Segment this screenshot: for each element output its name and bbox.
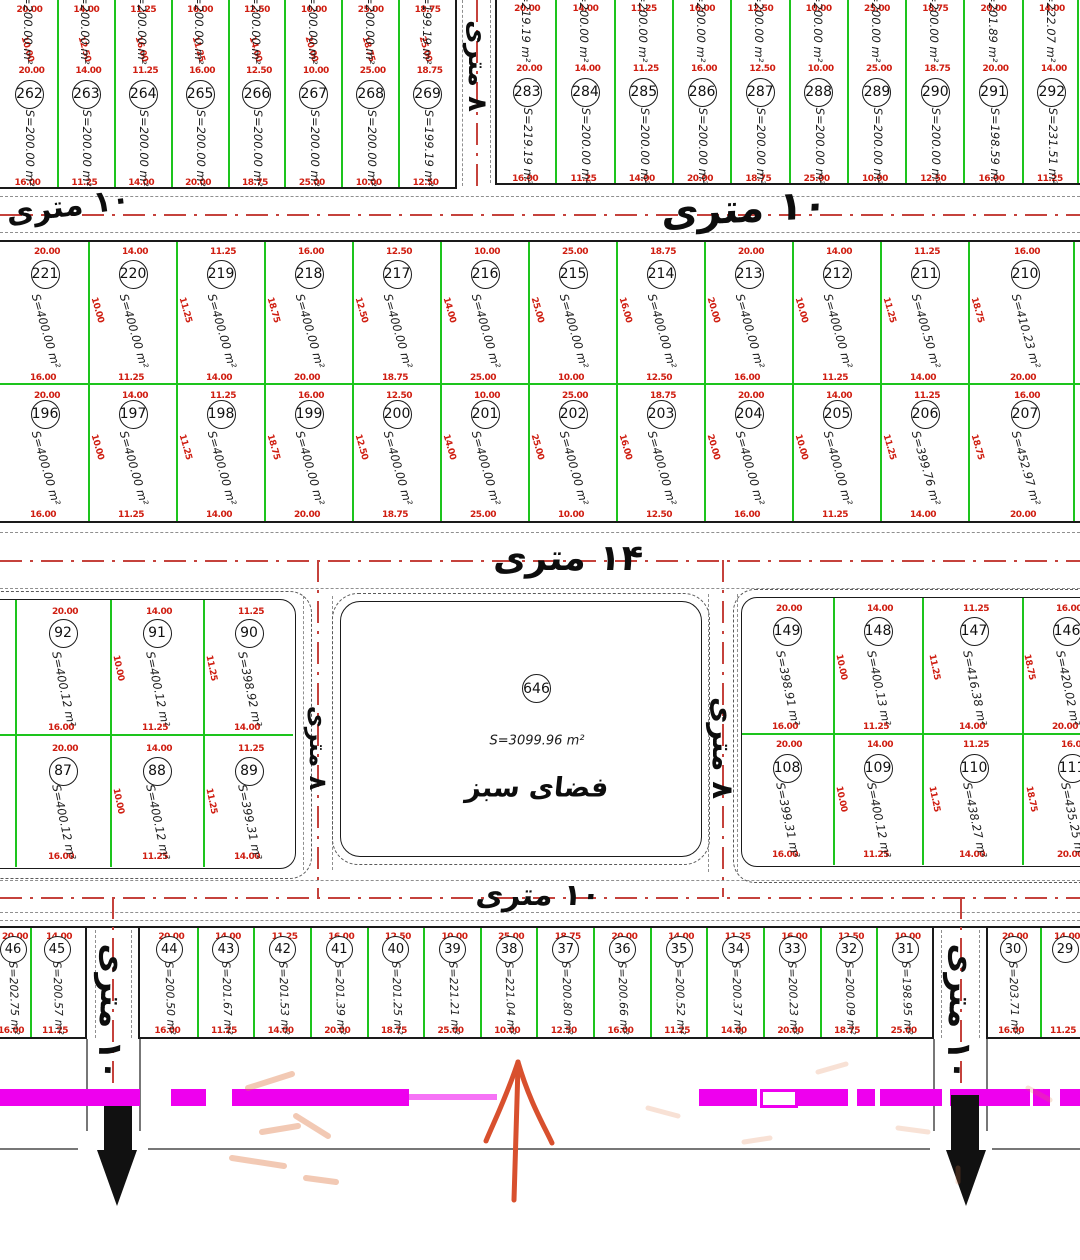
plot-area: S=200.37 m² [729, 961, 745, 1035]
plot-area: S=400.00 m² [117, 429, 152, 507]
plot-number-circle: 286 [688, 78, 717, 107]
plot-number: 214 [648, 266, 675, 282]
red-dimension: 18.75 [650, 247, 676, 257]
red-dimension: 20.00 [34, 247, 60, 257]
plot-number-circle: 43 [212, 936, 239, 963]
plot-number-circle: 37 [552, 936, 579, 963]
red-dimension: 25.00 [470, 373, 496, 383]
plot-number: 212 [824, 266, 851, 282]
red-dimension: 11.25 [118, 510, 144, 520]
plot-number: 91 [148, 625, 166, 641]
plot-area: S=200.00 m² [813, 108, 827, 185]
red-dimension: 11.25 [132, 66, 158, 76]
red-dimension-side: 16.00 [617, 433, 634, 461]
plot-number: 215 [560, 266, 587, 282]
magenta-utility-dash [1060, 1089, 1080, 1106]
red-dimension: 25.00 [470, 510, 496, 520]
plot-number: 147 [961, 623, 988, 639]
plot-number: 287 [747, 84, 774, 100]
plot-number: 29 [1057, 942, 1074, 957]
red-dimension: 18.75 [924, 64, 950, 74]
plot-area: S=231.51 m² [1046, 108, 1060, 185]
red-dimension-side: 20.00 [705, 433, 722, 461]
red-dimension: 14.00 [867, 740, 893, 750]
red-dimension: 20.00 [52, 744, 78, 754]
plot-number: 89 [240, 763, 258, 779]
plot-number: 291 [980, 84, 1007, 100]
plot-number-circle: 148 [864, 617, 893, 646]
red-dimension: 16.00 [30, 510, 56, 520]
plot-area: S=400.00 m² [821, 429, 856, 507]
plot-number-circle: 215 [559, 260, 588, 289]
plot-number-circle: 198 [207, 400, 236, 429]
red-dimension: 20.00 [1010, 373, 1036, 383]
plot-area: S=400.00 m² [557, 429, 592, 507]
plot-area: S=200.66 m² [616, 961, 632, 1035]
red-dimension: 11.25 [963, 604, 989, 614]
plot-number-circle: 109 [864, 754, 893, 783]
plot-number-circle: 288 [804, 78, 833, 107]
plot-number: 42 [274, 942, 291, 957]
plot-area: S=221.21 m² [446, 961, 462, 1035]
red-dimension: 14.00 [574, 64, 600, 74]
red-dimension: 20.00 [738, 247, 764, 257]
plot-area: S=200.00 m² [308, 110, 322, 187]
parcel-divider-line [672, 0, 674, 183]
plot-area-partial: S=199.19 m² [420, 0, 434, 64]
parcel-divider-line [398, 0, 400, 187]
plot-area: S=200.80 m² [559, 961, 575, 1035]
red-dimension-side: 14.00 [441, 296, 458, 324]
plot-number-circle: 30 [1000, 936, 1027, 963]
plot-area: S=400.00 m² [293, 292, 328, 370]
parcel-divider-line [1022, 0, 1024, 183]
red-dimension: 12.50 [646, 510, 672, 520]
parcel-divider-line [905, 0, 907, 183]
plot-number: 203 [648, 406, 675, 422]
plot-number-circle: 41 [326, 936, 353, 963]
plot-area: S=400.00 m² [29, 429, 64, 507]
parcel-divider-line [616, 242, 618, 521]
plot-area: S=400.00 m² [381, 429, 416, 507]
plot-number: 290 [922, 84, 949, 100]
plot-number-circle: 45 [44, 936, 71, 963]
plot-number-circle: 268 [356, 80, 385, 109]
plot-number: 39 [444, 942, 461, 957]
plot-number-circle: 287 [746, 78, 775, 107]
plot-area: S=400.00 m² [293, 429, 328, 507]
plot-number-circle: 108 [773, 754, 802, 783]
street-label-8m-mid-right-vertical: ۸ متری [706, 697, 740, 799]
plot-area: S=452.97 m² [1009, 429, 1044, 507]
block-boundary-line [495, 0, 497, 185]
parcel-divider-line [284, 0, 286, 187]
parcel-divider-line [536, 928, 538, 1037]
plot-number: 204 [736, 406, 763, 422]
red-dimension-side: 12.50 [353, 296, 370, 324]
plot-area: S=400.00 m² [469, 429, 504, 507]
plot-number: 286 [689, 84, 716, 100]
plot-area: S=200.00 m² [871, 108, 885, 185]
parcel-divider-line [876, 928, 878, 1037]
plot-area: S=400.00 m² [733, 292, 768, 370]
green-space-area: S=3099.96 m² [490, 734, 585, 749]
magenta-utility-dash [880, 1089, 942, 1106]
plot-number: 87 [54, 763, 72, 779]
plot-area-partial: S=200.00 m² [249, 0, 263, 64]
plot-area: S=200.00 m² [929, 108, 943, 185]
plot-number-circle: 31 [892, 936, 919, 963]
plot-area: S=399.76 m² [909, 429, 944, 507]
parcel-divider-line [963, 0, 965, 183]
plot-area: S=400.00 m² [117, 292, 152, 370]
plot-area: S=200.09 m² [842, 961, 858, 1035]
street-centerline [0, 214, 1080, 216]
plot-area-partial: S=200.00 m² [135, 0, 149, 64]
plot-number: 207 [1012, 406, 1039, 422]
plot-number: 289 [864, 84, 891, 100]
parcel-divider-line [706, 928, 708, 1037]
plot-area-partial: S=200.00 m² [752, 0, 766, 62]
parcel-divider-line [423, 928, 425, 1037]
parcel-divider-line [789, 0, 791, 183]
plot-number-circle: 291 [979, 78, 1008, 107]
red-dimension-side: 18.75 [969, 296, 986, 324]
parcel-divider-line [792, 242, 794, 521]
plot-number-circle: 218 [295, 260, 324, 289]
plot-number-circle: 196 [31, 400, 60, 429]
plot-number: 108 [774, 760, 801, 776]
plot-number: 34 [727, 942, 744, 957]
plot-number: 45 [49, 942, 66, 957]
red-dimension: 16.00 [1061, 740, 1080, 750]
red-dimension: 25.00 [360, 66, 386, 76]
plot-area-partial: S=222.07 m² [1044, 0, 1058, 62]
plot-number: 202 [560, 406, 587, 422]
parcel-divider-line [171, 0, 173, 187]
plot-number: 213 [736, 266, 763, 282]
plot-number-circle: 284 [571, 78, 600, 107]
plot-number-circle: 216 [471, 260, 500, 289]
plot-number: 269 [414, 86, 441, 102]
parcel-divider-line [253, 928, 255, 1037]
plot-number-circle: 212 [823, 260, 852, 289]
plot-area-partial: S=200.00 m² [577, 0, 591, 62]
street-wall-line [933, 1039, 935, 1131]
red-dimension: 14.00 [146, 607, 172, 617]
plot-number: 111 [1059, 760, 1080, 776]
red-dimension: 20.00 [18, 66, 44, 76]
parcel-divider-line [1077, 0, 1079, 183]
plot-number-circle: 210 [1011, 260, 1040, 289]
plot-area-partial: S=200.00 m² [927, 0, 941, 62]
plot-number: 216 [472, 266, 499, 282]
plot-number-circle: 200 [383, 400, 412, 429]
parcel-divider-line [1073, 242, 1075, 521]
left-exit-arrow-shaft [104, 1106, 132, 1152]
plot-number: 221 [32, 266, 59, 282]
red-dimension-side: 18.75 [265, 433, 282, 461]
plot-number-circle: 283 [513, 78, 542, 107]
magenta-utility-dash [857, 1089, 875, 1106]
block-boundary-line [138, 926, 140, 1039]
plot-area: S=400.00 m² [205, 292, 240, 370]
street-wall-line [986, 1039, 988, 1131]
red-dimension: 11.25 [1050, 1026, 1076, 1036]
orange-eraser-scribbles-right [648, 1064, 1050, 1182]
plot-area-partial: S=200.00 m² [811, 0, 825, 62]
street-label-10m-lower: ۱۰ متری [474, 878, 602, 913]
red-dimension: 11.25 [822, 510, 848, 520]
plot-area: S=200.23 m² [786, 961, 802, 1035]
red-dimension-side: 11.25 [177, 433, 194, 461]
plot-number: 283 [514, 84, 541, 100]
red-dimension-side: 18.75 [969, 433, 986, 461]
plot-number-circle: 91 [143, 619, 172, 648]
plot-area: S=200.00 m² [696, 108, 710, 185]
magenta-utility-dash [1033, 1089, 1050, 1106]
plot-number-circle: 38 [496, 936, 523, 963]
plot-number-circle: 90 [235, 619, 264, 648]
plot-number-circle: 42 [269, 936, 296, 963]
parcel-divider-line [30, 928, 32, 1037]
plot-number-circle: 217 [383, 260, 412, 289]
plot-area-partial: S=200.00 m² [363, 0, 377, 64]
plot-number-circle: 262 [15, 80, 44, 109]
plot-number-circle: 110 [960, 754, 989, 783]
red-dimension-side: 25.00 [529, 296, 546, 324]
plot-area: S=219.19 m² [521, 108, 535, 185]
plot-number: 268 [357, 86, 384, 102]
plot-number: 288 [805, 84, 832, 100]
parcel-divider-line [847, 0, 849, 183]
block-boundary-line [986, 926, 988, 1039]
right-exit-arrow-shaft [951, 1095, 979, 1152]
magenta-utility-dash [793, 1089, 848, 1106]
red-dimension-side: 18.75 [265, 296, 282, 324]
red-dimension-side: 10.00 [793, 296, 810, 324]
plot-area: S=200.00 m² [638, 108, 652, 185]
red-dimension: 11.25 [963, 740, 989, 750]
red-dimension: 12.50 [386, 247, 412, 257]
magenta-utility-dash [0, 1089, 140, 1106]
plot-number: 196 [32, 406, 59, 422]
plot-area: S=400.00 m² [645, 429, 680, 507]
plot-number: 88 [148, 763, 166, 779]
plot-number-circle: 202 [559, 400, 588, 429]
street-label-10m-top-right: ۱۰ متری [661, 182, 829, 237]
parcel-divider-line [88, 242, 90, 521]
plot-area: S=201.53 m² [276, 961, 292, 1035]
red-dimension: 20.00 [776, 740, 802, 750]
parcel-divider-line [57, 0, 59, 187]
parcel-divider-line [730, 0, 732, 183]
red-dimension: 16.00 [189, 66, 215, 76]
red-dimension: 14.00 [206, 373, 232, 383]
plot-number: 201 [472, 406, 499, 422]
plot-number: 199 [296, 406, 323, 422]
plot-number-circle: 87 [49, 757, 78, 786]
plot-area: S=400.00 m² [29, 292, 64, 370]
plot-number-circle: 201 [471, 400, 500, 429]
parcel-divider-line [228, 0, 230, 187]
magenta-utility-dash-faint [400, 1094, 497, 1100]
plot-number: 44 [161, 942, 178, 957]
plot-area-partial: S=200.00 m² [636, 0, 650, 62]
red-dimension-side: 11.25 [881, 296, 898, 324]
parcel-divider-line [440, 242, 442, 521]
plot-number-circle: 214 [647, 260, 676, 289]
plot-number: 30 [1005, 942, 1022, 957]
block-boundary-line [85, 926, 87, 1039]
plot-number: 219 [208, 266, 235, 282]
block-boundary-line [0, 1037, 87, 1039]
block-boundary-line [0, 521, 1080, 523]
plot-number-circle: 199 [295, 400, 324, 429]
block-boundary-line [0, 240, 1080, 242]
plot-area: S=400.00 m² [381, 292, 416, 370]
plot-area: S=200.00 m² [23, 110, 37, 187]
plot-number-circle: 203 [647, 400, 676, 429]
plot-number-circle: 147 [960, 617, 989, 646]
subdivision-map: 646 S=3099.96 m² فضای سبز ۱۰ متری ۱۰ متر… [0, 0, 1080, 1260]
plot-number-circle: 264 [129, 80, 158, 109]
magenta-utility-dash [171, 1089, 206, 1106]
block-boundary-line [0, 926, 1080, 928]
plot-number: 197 [120, 406, 147, 422]
plot-number-circle: 89 [235, 757, 264, 786]
red-dimension: 14.00 [826, 247, 852, 257]
street-label-10m-bottom-left-vertical: ۱۰ متری [90, 943, 134, 1081]
plot-number: 292 [1038, 84, 1065, 100]
plot-number-circle: 149 [773, 617, 802, 646]
red-dimension-side: 10.00 [89, 433, 106, 461]
plot-area-partial: S=200.00 m² [192, 0, 206, 64]
plot-area: S=200.00 m² [251, 110, 265, 187]
plot-area-partial: S=200.00 m² [306, 0, 320, 64]
plot-number: 262 [16, 86, 43, 102]
plot-number: 40 [388, 942, 405, 957]
parcel-divider-line [352, 242, 354, 521]
plot-number-circle: 219 [207, 260, 236, 289]
parcel-divider-line [480, 928, 482, 1037]
plot-area: S=200.52 m² [672, 961, 688, 1035]
plot-number: 218 [296, 266, 323, 282]
plot-area: S=198.95 m² [899, 961, 915, 1035]
plot-number: 33 [784, 942, 801, 957]
plot-number-circle: 32 [836, 936, 863, 963]
plot-area: S=400.00 m² [557, 292, 592, 370]
plot-number: 285 [630, 84, 657, 100]
plot-number-circle: 46 [0, 936, 27, 963]
plot-number: 220 [120, 266, 147, 282]
plot-area-partial: S=201.89 m² [986, 0, 1000, 62]
plot-number: 110 [961, 760, 988, 776]
green-space-number: 646 [523, 681, 550, 697]
red-dimension: 16.00 [1056, 604, 1080, 614]
plot-number-circle: 290 [921, 78, 950, 107]
plot-number: 198 [208, 406, 235, 422]
red-dimension-side: 20.00 [705, 296, 722, 324]
street-dashed-edge [0, 532, 1080, 533]
street-dashed-edge [0, 232, 1080, 233]
plot-number-circle: 266 [242, 80, 271, 109]
street-label-10m-top-left: ۱۰ متری [4, 182, 131, 232]
orange-up-arrow [486, 1062, 552, 1200]
plot-number: 148 [865, 623, 892, 639]
red-dimension: 16.00 [734, 373, 760, 383]
plot-number-circle: 197 [119, 400, 148, 429]
magenta-utility-dash [232, 1089, 409, 1106]
red-dimension: 10.00 [558, 510, 584, 520]
red-dimension: 11.25 [238, 744, 264, 754]
red-dimension: 10.00 [303, 66, 329, 76]
plot-number-circle: 44 [156, 936, 183, 963]
plot-area: S=200.00 m² [137, 110, 151, 187]
green-space-label: فضای سبز [464, 773, 610, 804]
block-boundary-line [139, 1037, 934, 1039]
parcel-divider-line [176, 242, 178, 521]
red-dimension: 12.50 [749, 64, 775, 74]
plot-area: S=400.00 m² [821, 292, 856, 370]
red-dimension-side: 10.00 [793, 433, 810, 461]
plot-number: 284 [572, 84, 599, 100]
red-dimension: 20.00 [52, 607, 78, 617]
parcel-divider-line [114, 0, 116, 187]
magenta-utility-dash-hollow [760, 1089, 798, 1108]
red-dimension: 14.00 [146, 744, 172, 754]
plot-number: 38 [501, 942, 518, 957]
red-dimension: 10.00 [808, 64, 834, 74]
plot-area: S=200.00 m² [365, 110, 379, 187]
red-dimension: 20.00 [776, 604, 802, 614]
red-dimension: 12.50 [246, 66, 272, 76]
plot-number: 200 [384, 406, 411, 422]
red-dimension: 20.00 [294, 373, 320, 383]
plot-number-circle: 146 [1053, 617, 1080, 646]
plot-area: S=198.59 m² [988, 108, 1002, 185]
red-dimension: 20.00 [1010, 510, 1036, 520]
red-dimension: 20.00 [294, 510, 320, 520]
block-boundary-line [455, 0, 457, 189]
plot-number: 90 [240, 625, 258, 641]
plot-area: S=201.25 m² [389, 961, 405, 1035]
plot-number-circle: 263 [72, 80, 101, 109]
plot-area: S=200.00 m² [80, 110, 94, 187]
plot-number-circle: 33 [779, 936, 806, 963]
street-label-8m-top-vertical: ۸ متری [462, 20, 492, 112]
red-dimension: 10.00 [558, 373, 584, 383]
plot-number-circle: 206 [911, 400, 940, 429]
red-dimension-side: 10.00 [89, 296, 106, 324]
plot-area: S=221.04 m² [502, 961, 518, 1035]
red-dimension: 14.00 [910, 510, 936, 520]
plot-number: 146 [1054, 623, 1080, 639]
plot-area: S=400.00 m² [733, 429, 768, 507]
red-dimension: 25.00 [562, 247, 588, 257]
plot-number-circle: 204 [735, 400, 764, 429]
plot-number-circle: 220 [119, 260, 148, 289]
plot-number-circle: 265 [186, 80, 215, 109]
plot-number-circle: 269 [413, 80, 442, 109]
parcel-divider-line [614, 0, 616, 183]
green-space-border [340, 601, 702, 857]
plot-number: 264 [130, 86, 157, 102]
red-dimension: 18.75 [382, 510, 408, 520]
street-label-10m-bottom-right-vertical: ۱۰ متری [939, 943, 983, 1081]
red-dimension: 20.00 [983, 64, 1009, 74]
red-dimension-side: 11.25 [881, 433, 898, 461]
